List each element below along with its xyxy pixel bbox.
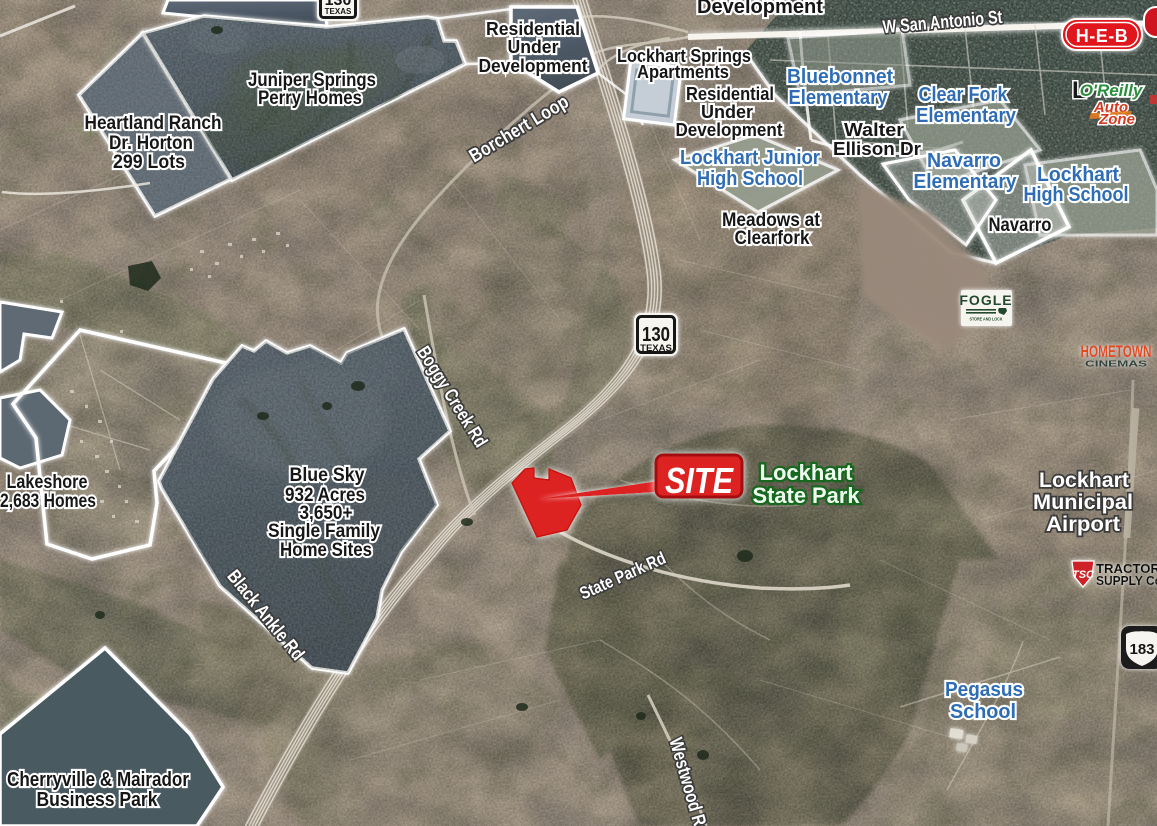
svg-text:FOGLE: FOGLE xyxy=(959,292,1012,308)
svg-text:TEXAS: TEXAS xyxy=(325,7,352,16)
svg-text:Airport: Airport xyxy=(1046,513,1120,536)
svg-text:Blue Sky: Blue Sky xyxy=(290,464,365,486)
svg-text:Ellison Dr: Ellison Dr xyxy=(833,138,921,159)
svg-text:High School: High School xyxy=(1024,184,1129,206)
svg-text:State Park: State Park xyxy=(753,483,861,508)
svg-text:Clear Fork: Clear Fork xyxy=(919,84,1009,106)
svg-text:Apartments: Apartments xyxy=(637,61,729,82)
svg-text:Heartland Ranch: Heartland Ranch xyxy=(85,112,222,134)
svg-text:CINEMAS: CINEMAS xyxy=(1085,360,1148,369)
svg-text:TEXAS: TEXAS xyxy=(640,343,672,354)
svg-text:Bluebonnet: Bluebonnet xyxy=(787,66,893,88)
svg-text:SUPPLY Co: SUPPLY Co xyxy=(1096,574,1157,588)
svg-text:Residential: Residential xyxy=(686,84,774,104)
svg-text:Development: Development xyxy=(697,0,823,18)
svg-text:Lockhart Junior: Lockhart Junior xyxy=(680,147,820,169)
svg-text:Navarro: Navarro xyxy=(989,215,1052,236)
svg-text:SITE: SITE xyxy=(665,460,734,501)
svg-text:2,683 Homes: 2,683 Homes xyxy=(0,490,96,512)
svg-text:183: 183 xyxy=(1129,641,1154,658)
svg-text:Cherryville & Mairador: Cherryville & Mairador xyxy=(7,769,189,791)
svg-text:Under: Under xyxy=(701,102,753,122)
svg-text:Lockhart: Lockhart xyxy=(1039,469,1129,492)
svg-text:Home Sites: Home Sites xyxy=(280,539,372,561)
svg-text:Lockhart: Lockhart xyxy=(760,460,854,485)
svg-text:Development: Development xyxy=(479,55,588,76)
svg-text:Perry Homes: Perry Homes xyxy=(258,87,362,109)
svg-text:Clearfork: Clearfork xyxy=(735,228,810,249)
svg-text:Municipal: Municipal xyxy=(1033,491,1133,514)
svg-text:H-E-B: H-E-B xyxy=(1076,26,1129,46)
svg-text:Zone: Zone xyxy=(1098,111,1135,128)
svg-text:299 Lots: 299 Lots xyxy=(113,151,185,173)
svg-text:Lockhart: Lockhart xyxy=(1037,164,1119,186)
svg-text:School: School xyxy=(950,701,1016,723)
svg-text:TSC: TSC xyxy=(1072,569,1095,581)
svg-text:Walter: Walter xyxy=(844,119,904,140)
svg-text:Elementary: Elementary xyxy=(789,87,889,109)
svg-text:Navarro: Navarro xyxy=(927,150,1001,172)
svg-text:HOMETOWN: HOMETOWN xyxy=(1081,343,1152,361)
svg-text:Pegasus: Pegasus xyxy=(945,679,1023,701)
svg-text:Elementary: Elementary xyxy=(914,171,1018,193)
svg-text:Development: Development xyxy=(676,120,783,140)
svg-text:O'Reilly: O'Reilly xyxy=(1080,81,1144,100)
svg-text:Business Park: Business Park xyxy=(37,789,159,811)
svg-text:Elementary: Elementary xyxy=(916,105,1017,127)
svg-text:Under: Under xyxy=(508,36,559,57)
svg-text:STORE AND LOCK: STORE AND LOCK xyxy=(970,317,1004,322)
svg-text:High School: High School xyxy=(697,168,803,190)
